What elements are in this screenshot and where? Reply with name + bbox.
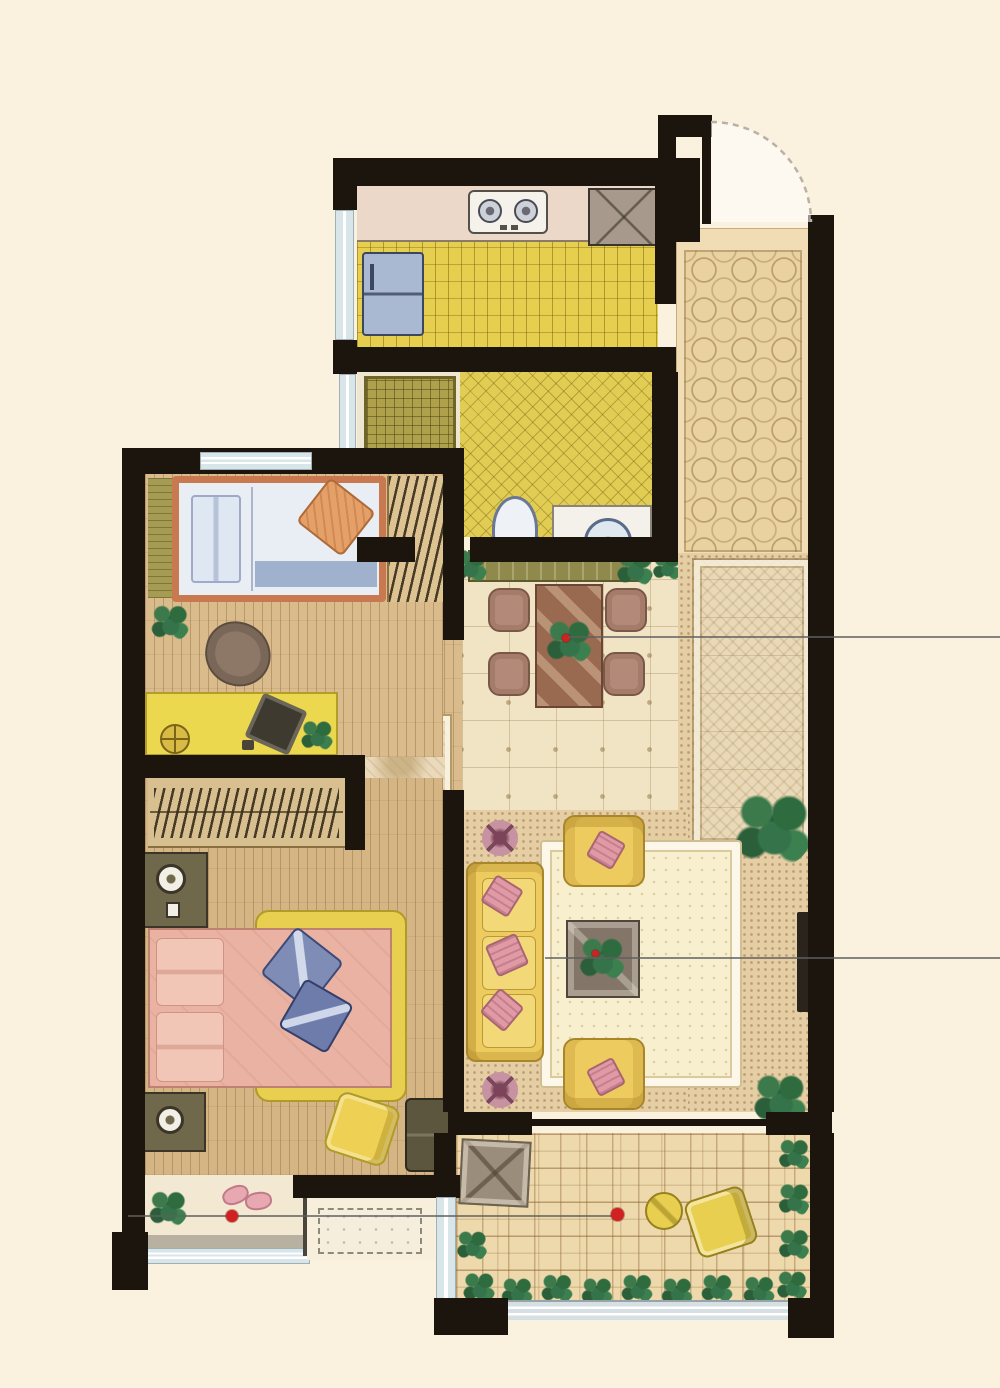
annotation-dot (226, 1210, 238, 1222)
bed2-foot-runner (255, 561, 377, 587)
stove-knob (511, 225, 518, 230)
entry-tile (684, 250, 802, 552)
laundry-mat (364, 376, 456, 456)
balcony-side-glass (436, 1197, 456, 1300)
wall (345, 158, 672, 186)
wall (448, 1112, 532, 1135)
desk-stool (160, 724, 190, 754)
corridor-palm (733, 788, 813, 868)
kitchen-window (335, 210, 354, 340)
gas-stove (468, 190, 548, 234)
dining-chair (603, 652, 645, 696)
right-outer-wall (808, 215, 834, 1112)
left-outer-wall (122, 448, 145, 1232)
stove-knob (500, 225, 507, 230)
shrub (778, 1226, 810, 1262)
bed2-pillow (191, 495, 241, 583)
wardrobe-rail (150, 811, 343, 813)
floor-plan (0, 0, 1000, 1388)
armchair-pillow (586, 830, 627, 871)
dining-centerpiece (545, 617, 593, 665)
coffee-table-flower (592, 950, 599, 957)
shrub (778, 1136, 810, 1172)
wall (112, 1232, 148, 1290)
wall (345, 755, 365, 850)
balcony-mat (458, 1138, 531, 1208)
wall (448, 562, 464, 620)
refrigerator (362, 252, 424, 336)
wall (655, 158, 676, 304)
wall (434, 1298, 508, 1335)
armchair-pillow (586, 1057, 627, 1098)
master-wardrobe (148, 778, 345, 848)
fridge-handle (370, 264, 374, 290)
leader-line (545, 957, 1000, 959)
lamp-icon (156, 1106, 184, 1134)
entry-door-leaf (702, 118, 711, 224)
armchair-top (563, 815, 645, 887)
bay-window-glass (122, 1248, 310, 1264)
balcony-table (645, 1192, 683, 1230)
bed-pillow-pink (156, 1012, 224, 1082)
flower-stool (482, 820, 518, 856)
armchair-bottom (563, 1038, 645, 1110)
dining-chair (605, 588, 647, 632)
bay-plant (148, 1188, 188, 1228)
wall (434, 1133, 456, 1197)
bedroom2-plant (150, 602, 190, 642)
dining-chair (488, 588, 530, 632)
bedroom2-desk (145, 692, 338, 756)
wardrobe-clothes (154, 788, 339, 838)
desk-item (242, 740, 254, 750)
bed2-divider (251, 487, 253, 591)
wall (333, 158, 357, 210)
nightstand-bottom (142, 1092, 206, 1152)
wall (766, 1112, 832, 1135)
entry-wall-stub (676, 158, 700, 242)
wall (122, 755, 345, 778)
wall (810, 1133, 834, 1333)
dining-chair (488, 652, 530, 696)
wall (333, 347, 676, 372)
bay-sill (128, 1235, 305, 1248)
bed-pillow-pink (156, 938, 224, 1006)
shrub (776, 1268, 808, 1302)
shrub (456, 1228, 488, 1262)
leader-line (568, 636, 1000, 638)
bedroom2-shelf-strip (148, 478, 174, 598)
annotation-dot (611, 1208, 624, 1221)
wall (357, 537, 415, 562)
balcony-railing (505, 1300, 789, 1320)
lamp-icon (156, 864, 186, 894)
wall (652, 372, 678, 562)
balcony-sliding-door (532, 1119, 766, 1126)
leader-line (128, 1215, 620, 1217)
wall (443, 790, 464, 1112)
nightstand-top (142, 852, 208, 928)
wall (470, 537, 678, 562)
lamp-base-icon (166, 902, 180, 918)
master-bed (148, 928, 392, 1088)
bedroom2-window (200, 452, 312, 470)
flower-stool (482, 1072, 518, 1108)
kitchen-sink (588, 188, 660, 246)
wall (658, 137, 676, 160)
shrub (778, 1180, 810, 1218)
desk-plant (300, 718, 334, 752)
stove-burner-icon (478, 199, 502, 223)
bedroom2-bed (172, 476, 386, 602)
stove-burner-icon (514, 199, 538, 223)
